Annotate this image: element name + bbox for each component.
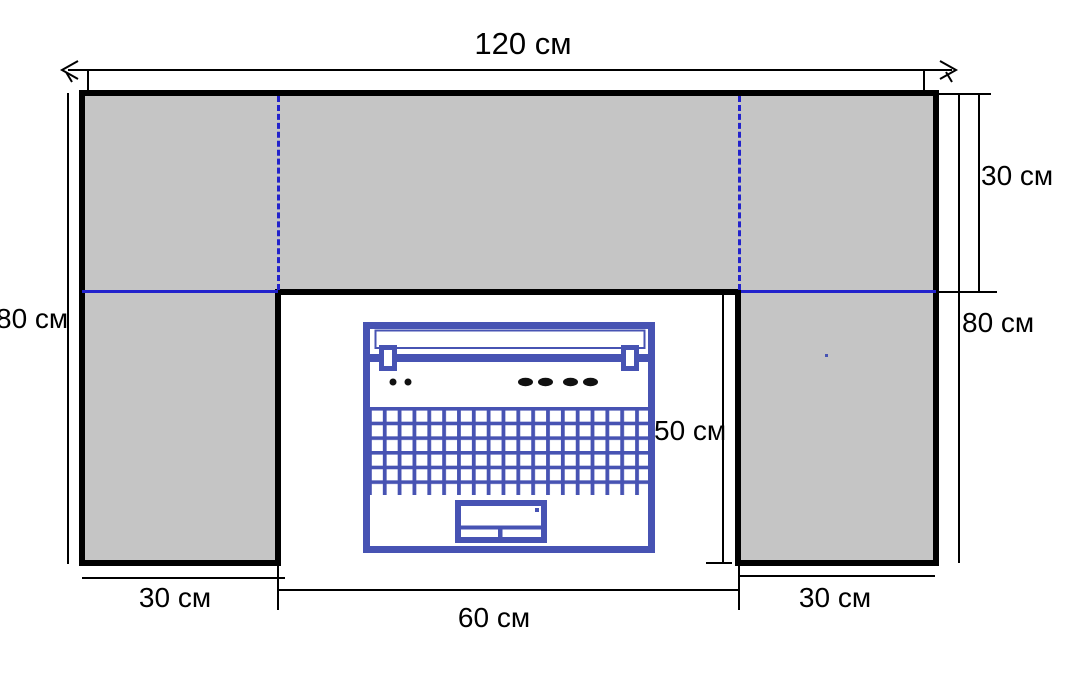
dim-label-top-width: 120 см xyxy=(423,28,623,61)
dim-label-right-top-depth: 30 см xyxy=(981,161,1053,190)
laptop-touchpad-button-separator xyxy=(498,526,503,540)
dim-label-left-height: 80 см xyxy=(0,304,68,333)
diagram-canvas: 120 см 80 см 30 см 80 см 50 см 30 см 60 … xyxy=(0,0,1086,695)
cutout-right-edge xyxy=(735,289,741,566)
dim-label-inner-height: 50 см xyxy=(654,416,726,445)
dim-label-bottom-right-width: 30 см xyxy=(770,583,900,612)
cutout-top-edge xyxy=(275,289,741,295)
stray-blue-dot xyxy=(825,354,828,357)
dim-top-extension-left xyxy=(87,69,89,91)
dim-label-right-height: 80 см xyxy=(962,308,1034,337)
dim-label-bottom-left-width: 30 см xyxy=(110,583,240,612)
fold-guide-right-dashed-line xyxy=(738,96,741,290)
desk-left-column xyxy=(82,292,278,563)
dim-bottom-60-line xyxy=(277,589,740,591)
laptop-touchpad-dot xyxy=(535,508,539,512)
laptop-hinge-left xyxy=(382,348,395,369)
laptop-lid-inner-rect xyxy=(376,331,645,349)
arrow-left-icon xyxy=(58,58,84,84)
dim-inner-50-tick xyxy=(706,562,732,564)
desk-top-strip xyxy=(82,93,936,292)
fold-guide-left-horizontal-line xyxy=(82,290,278,293)
outline-left-edge xyxy=(79,90,85,566)
dim-right-tick-top xyxy=(936,93,991,95)
laptop-drawing xyxy=(358,316,658,556)
outline-top-edge xyxy=(79,90,939,96)
laptop-hinge-right xyxy=(624,348,637,369)
dim-bottom-60-tick-left xyxy=(277,564,279,610)
outline-bottom-right-edge xyxy=(736,560,939,566)
dim-bottom-60-tick-right xyxy=(738,564,740,610)
desk-right-column xyxy=(739,292,936,563)
outline-right-edge xyxy=(933,90,939,566)
dim-label-bottom-center-width: 60 см xyxy=(414,603,574,632)
outline-bottom-left-edge xyxy=(79,560,281,566)
laptop-keyboard-keys xyxy=(368,407,650,495)
laptop-hinge-bar xyxy=(367,354,652,362)
dim-right-tick-mid xyxy=(936,291,997,293)
dim-bottom-left-30-line xyxy=(82,577,285,579)
arrow-right-icon xyxy=(934,58,960,84)
fold-guide-right-horizontal-line xyxy=(741,290,936,293)
dim-right-30-line xyxy=(978,94,980,292)
dim-top-line xyxy=(68,69,952,71)
fold-guide-left-dashed-line xyxy=(277,96,280,290)
dim-bottom-right-30-line xyxy=(739,575,935,577)
dim-top-extension-right xyxy=(923,69,925,91)
cutout-left-edge xyxy=(275,289,281,566)
dim-right-80-line xyxy=(958,93,960,563)
laptop-indicator-dots xyxy=(390,378,599,386)
